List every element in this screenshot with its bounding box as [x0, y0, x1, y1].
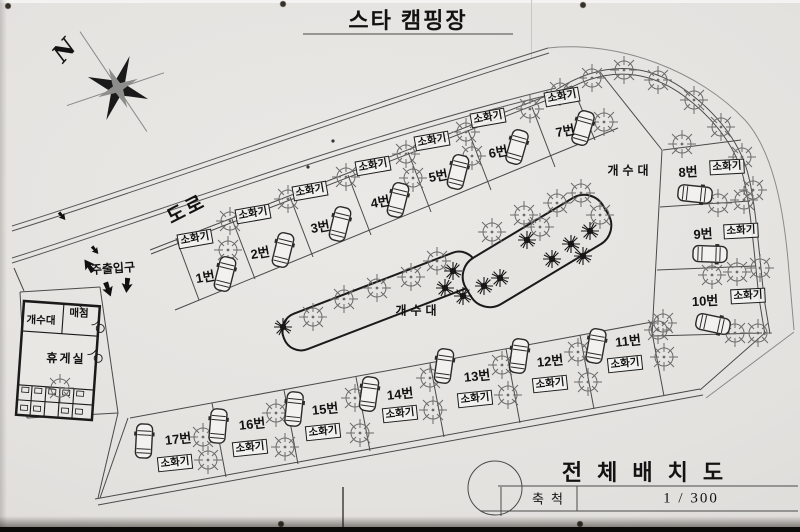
tree-icon: [330, 285, 358, 313]
site-label-9: 9번: [693, 223, 713, 243]
sink-station-label-upper: 개수대: [607, 162, 652, 179]
tree-icon: [730, 186, 758, 214]
tree-icon: [363, 274, 391, 302]
site-label-13: 13번: [463, 364, 491, 386]
site-label-15: 15번: [311, 397, 339, 419]
entrance-label: 주출입구: [90, 258, 135, 278]
scale-label: 축척: [532, 489, 570, 508]
car-icon: [677, 182, 713, 206]
shrub-icon: [454, 287, 472, 305]
shrub-icon: [491, 269, 509, 287]
tree-icon: [194, 446, 222, 474]
tree-icon: [698, 261, 726, 289]
tree-icon: [680, 86, 708, 114]
tree-icon: [744, 319, 772, 347]
tree-icon: [516, 95, 544, 123]
shrub-icon: [518, 231, 536, 249]
title-underline: [303, 33, 513, 35]
tree-icon: [543, 189, 571, 217]
sink-station-label-center: 개수대: [395, 302, 440, 319]
shrub-icon: [574, 247, 592, 265]
shrub-icon: [543, 250, 561, 268]
tree-icon: [574, 368, 602, 396]
site-label-10: 10번: [691, 290, 718, 310]
tree-icon: [668, 130, 696, 158]
car-icon: [444, 153, 472, 191]
shrub-icon: [274, 318, 292, 336]
arrow-icon: [121, 278, 133, 294]
site-label-14: 14번: [386, 382, 414, 404]
tree-icon: [46, 374, 74, 402]
tree-icon: [397, 263, 425, 291]
tree-icon: [650, 343, 678, 371]
car-icon: [583, 327, 609, 364]
tree-icon: [578, 64, 606, 92]
site-label-3: 3번: [309, 215, 331, 237]
site-label-4: 4번: [369, 190, 391, 212]
tree-icon: [746, 254, 774, 282]
tree-icon: [644, 316, 672, 344]
car-icon: [693, 243, 728, 265]
tree-icon: [610, 56, 638, 84]
car-icon: [211, 255, 239, 293]
site-label-16: 16번: [238, 412, 266, 434]
tree-icon: [494, 381, 522, 409]
car-icon: [206, 408, 229, 444]
tree-icon: [567, 179, 595, 207]
site-label-12: 12번: [536, 349, 564, 371]
extinguisher-label-9: 소화기: [723, 223, 759, 240]
site-label-7: 7번: [554, 119, 576, 141]
shrub-icon: [581, 222, 599, 240]
tree-icon: [723, 258, 751, 286]
building-room-store: 매점: [69, 305, 89, 321]
car-icon: [432, 348, 457, 385]
car-icon: [133, 423, 155, 458]
page-title: 스타 캠핑장: [348, 3, 467, 35]
sign-bottom-edge: [0, 527, 800, 532]
building-room-lounge: 휴게실: [46, 349, 86, 367]
site-label-2: 2번: [249, 241, 271, 263]
car-icon: [326, 205, 354, 243]
site-label-11: 11번: [614, 329, 642, 351]
extinguisher-label-8: 소화기: [709, 159, 745, 176]
site-label-8: 8번: [678, 161, 698, 181]
shrub-icon: [444, 262, 462, 280]
site-label-1: 1번: [194, 265, 216, 287]
tree-icon: [478, 218, 506, 246]
scale-value: 1 / 300: [663, 491, 719, 508]
tree-icon: [419, 396, 447, 424]
shrub-icon: [436, 279, 454, 297]
tree-icon: [510, 201, 538, 229]
tree-icon: [346, 419, 374, 447]
campground-sign-photo: 스타 캠핑장 N 도로 주출입구 개수대 개수대 개수대 매점 휴게실 전체배치…: [0, 0, 800, 532]
extinguisher-label-10: 소화기: [730, 288, 766, 305]
car-icon: [694, 310, 731, 337]
site-label-5: 5번: [427, 164, 449, 186]
drawing-title: 전체배치도: [562, 455, 738, 487]
tree-icon: [644, 66, 672, 94]
car-icon: [357, 376, 382, 413]
car-icon: [507, 338, 532, 375]
arrow-icon: [89, 244, 101, 256]
shrub-icon: [475, 277, 493, 295]
tree-icon: [299, 303, 327, 331]
car-icon: [269, 231, 297, 269]
site-label-17: 17번: [164, 427, 192, 449]
tree-icon: [707, 113, 735, 141]
building-room-sink: 개수대: [26, 312, 55, 328]
tree-icon: [271, 433, 299, 461]
site-label-6: 6번: [487, 140, 509, 162]
arrow-icon: [100, 281, 115, 299]
